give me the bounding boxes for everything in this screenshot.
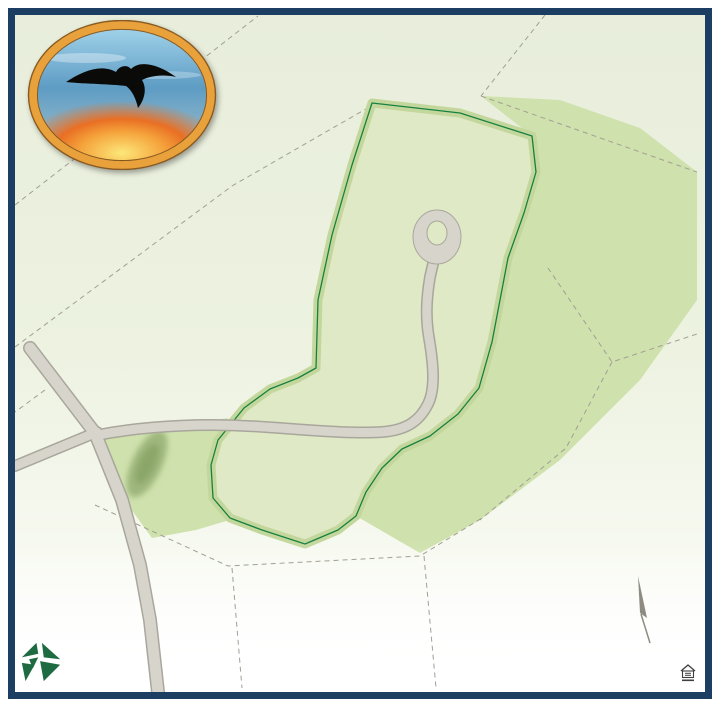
rolling-woods-preserve-logo	[26, 20, 218, 170]
patco-icon	[20, 641, 62, 683]
equal-housing-icon	[679, 663, 697, 688]
patco-construction-logo	[20, 641, 65, 683]
site-plan-page	[0, 0, 720, 707]
